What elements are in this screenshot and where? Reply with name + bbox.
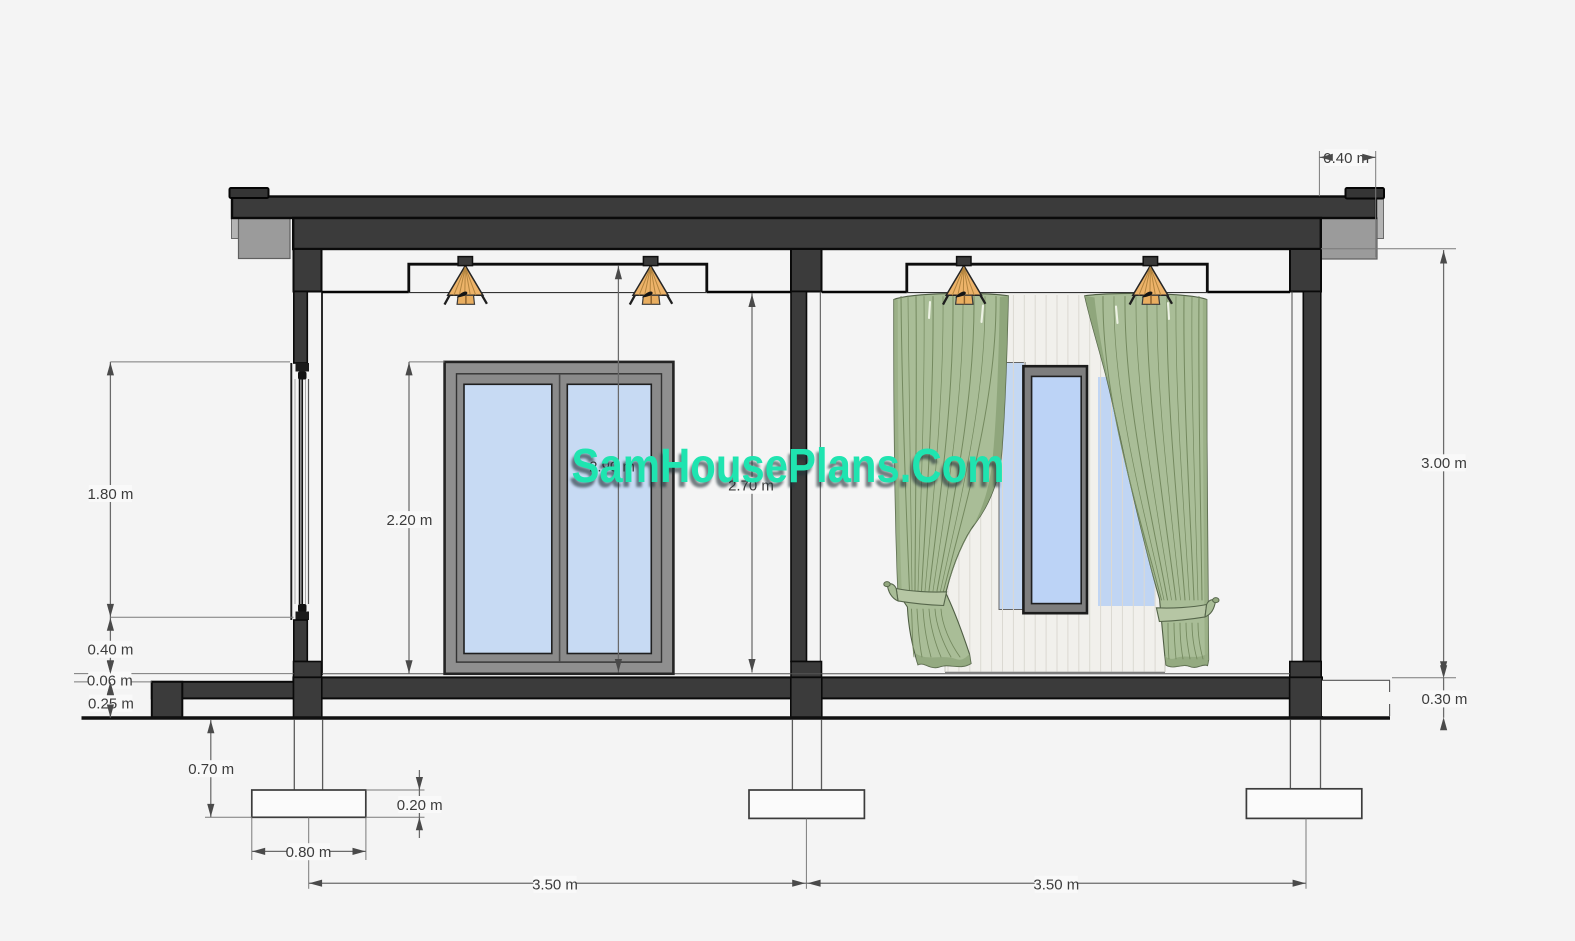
svg-text:SamHousePlans.Com: SamHousePlans.Com (572, 439, 1005, 493)
svg-text:3.50 m: 3.50 m (532, 877, 578, 894)
svg-text:3.00 m: 3.00 m (1421, 455, 1467, 472)
svg-text:0.80 m: 0.80 m (286, 844, 332, 861)
svg-text:0.20 m: 0.20 m (397, 797, 443, 814)
svg-text:0.70 m: 0.70 m (188, 761, 234, 778)
svg-text:1.80 m: 1.80 m (87, 486, 133, 503)
svg-text:3.50 m: 3.50 m (1033, 877, 1079, 894)
svg-text:0.30 m: 0.30 m (1421, 691, 1467, 708)
svg-text:2.20 m: 2.20 m (386, 512, 432, 529)
svg-text:0.40 m: 0.40 m (87, 642, 133, 659)
